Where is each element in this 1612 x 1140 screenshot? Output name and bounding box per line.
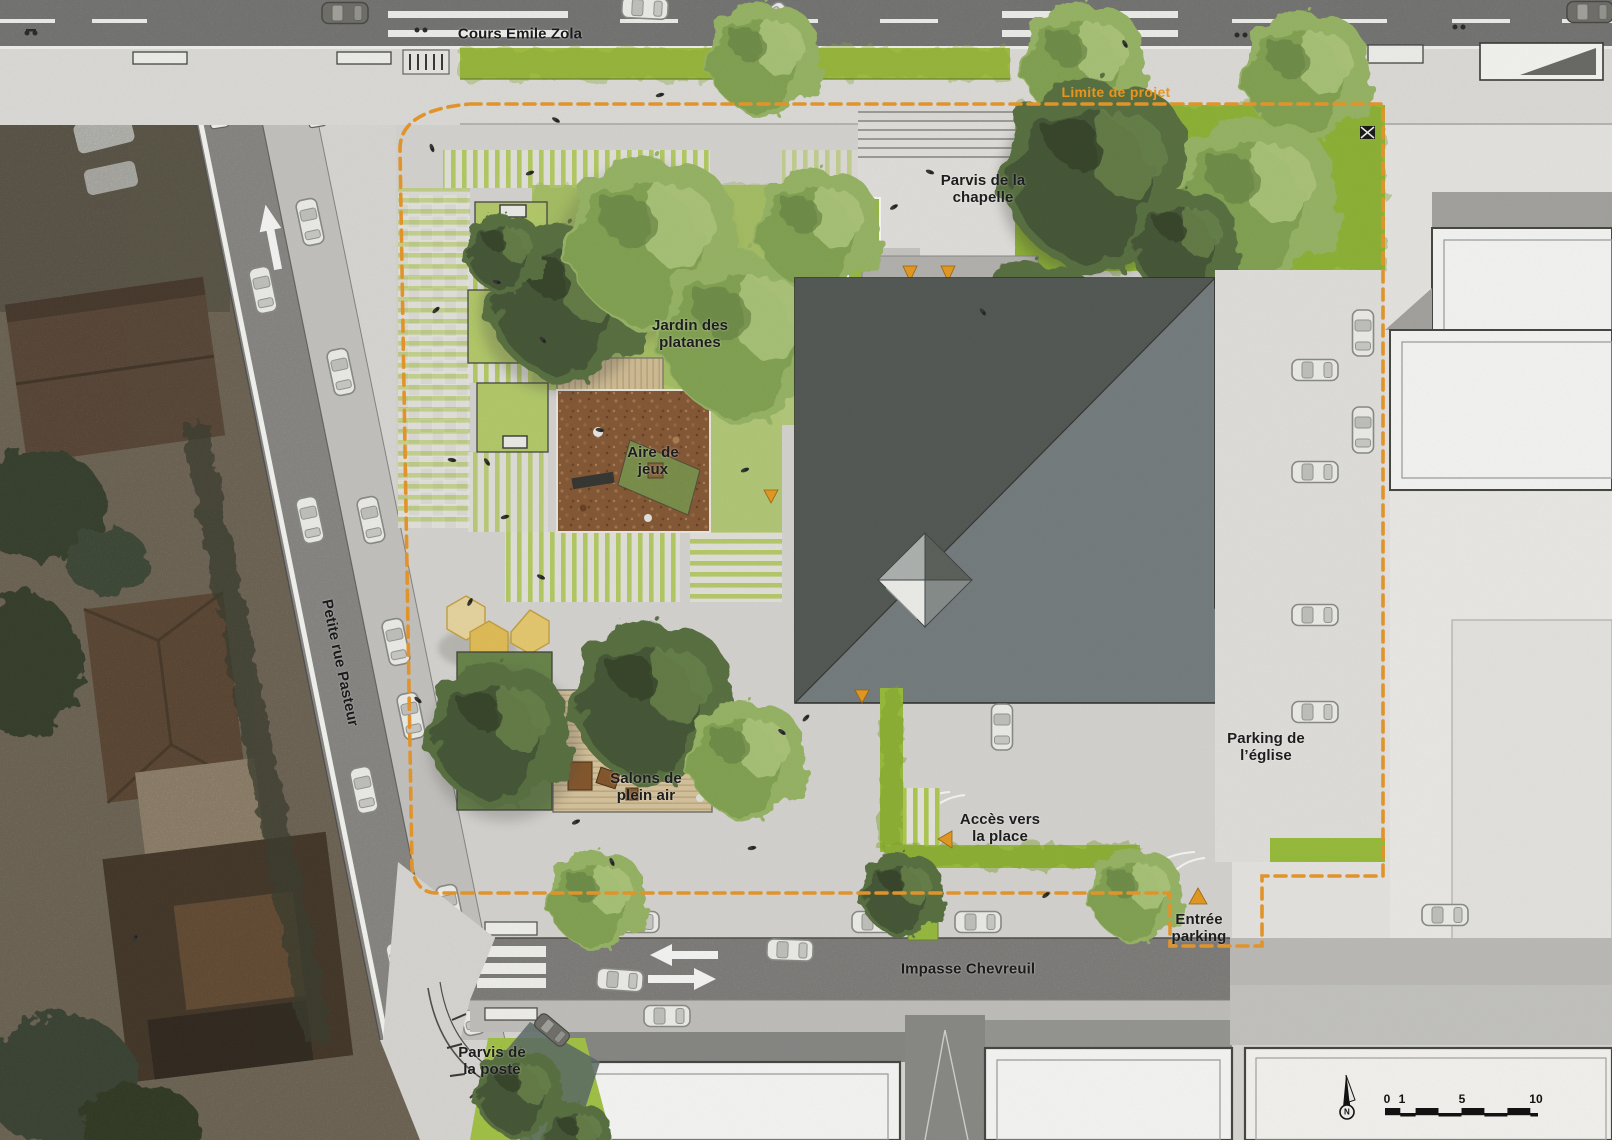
site-plan: Cours Emile Zola Limite de projet Parvis…: [0, 0, 1612, 1140]
paper-grain: [0, 0, 1612, 1140]
site-plan-drawing: [0, 0, 1612, 1140]
